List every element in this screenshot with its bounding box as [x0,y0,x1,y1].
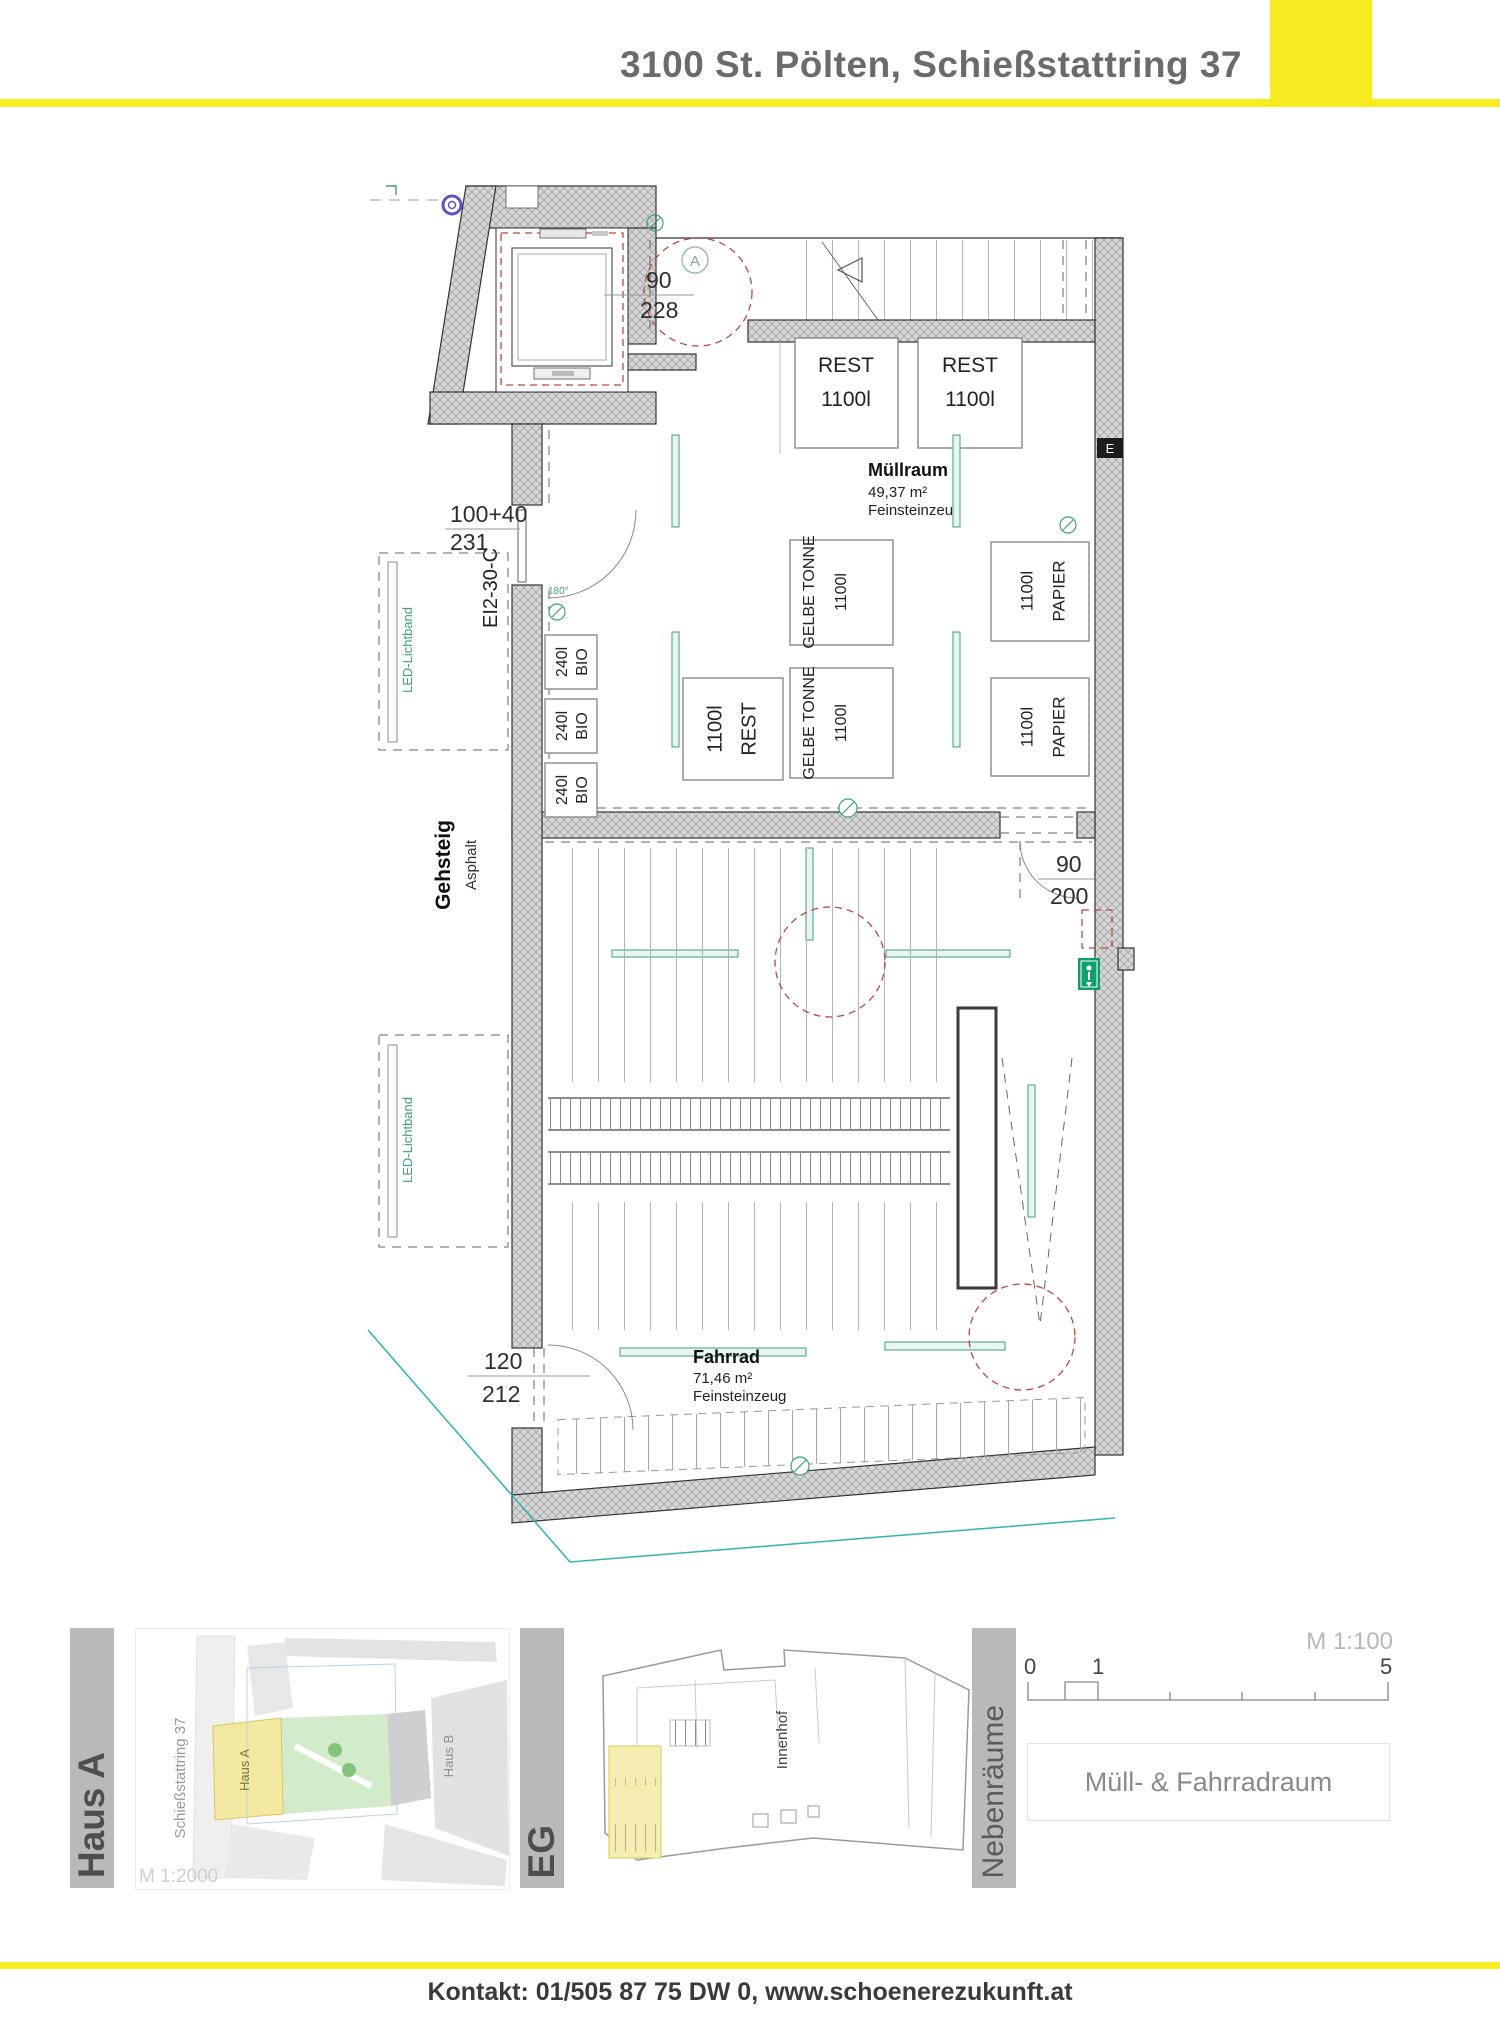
floor-drain-icon [791,1457,809,1475]
key-plan: Innenhof [575,1628,995,1895]
bin-rest-side-type: REST [738,702,760,755]
building-bar: Haus A [70,1628,114,1888]
room-floor-muellraum: Feinsteinzeug [868,502,961,519]
door-symbol-icon [549,604,565,620]
muellraum-label: Müllraum 49,37 m² Feinsteinzeug [868,460,961,519]
tree-icon [328,1743,342,1757]
bin-rest-side-size: 1100l [704,705,726,752]
bin-gelbe-1: GELBE TONNE 1100l [790,535,893,648]
building-bar-label: Haus A [71,1752,113,1878]
electrical-panel-label: E [1106,441,1115,456]
bin-bio-1-type: BIO [574,648,591,676]
site-street-label: Schießstattring 37 [172,1718,189,1839]
tree-icon [342,1763,356,1777]
bin-bio-2-type: BIO [574,712,591,740]
bin-bio-1: 240l BIO [545,635,597,689]
dim-bike-door-height: 212 [482,1381,520,1407]
bin-bio-3-size: 240l [554,775,571,805]
bin-rest-2-size: 1100l [945,388,995,411]
electrical-panel: E [1097,438,1123,458]
bin-rest-2: REST 1100l [918,338,1022,448]
section-marker-a-label: A [690,253,700,270]
bin-papier-1-size: 1100l [1017,571,1036,611]
room-name-muellraum: Müllraum [868,460,948,480]
site-plan: Schießstattring 37 Haus A Haus B M 1:200… [135,1628,510,1895]
dim-lift-door-width: 90 [646,267,672,293]
category-bar-label: Nebenräume [977,1705,1011,1878]
level-bar-label: EG [521,1825,563,1878]
room-area-fahrrad: 71,46 m² [693,1370,752,1387]
led-lichtband-lower: LED-Lichtband [379,1035,508,1247]
bin-gelbe-2: GELBE TONNE 1100l [790,666,893,779]
floor-plan-drawing: A 90 228 E REST 1100l REST 1100l Müllrau… [0,120,1500,1610]
bin-papier-2-size: 1100l [1017,707,1036,747]
room-area-muellraum: 49,37 m² [868,484,927,501]
footer-rule [0,1962,1500,1969]
site-haus-a-label: Haus A [237,1749,252,1791]
bin-rest-2-type: REST [942,354,998,377]
category-bar: Nebenräume [972,1628,1016,1888]
keyplan-courtyard-label: Innenhof [774,1710,791,1769]
room-name-fahrrad: Fahrrad [693,1347,760,1367]
dim-bike-door-width: 120 [484,1348,522,1374]
sheet-title: Müll- & Fahrradraum [1085,1767,1333,1797]
elevator [496,228,650,392]
bin-rest-1-type: REST [818,354,874,377]
bin-gelbe-2-type: GELBE TONNE [801,666,818,779]
bin-papier-2-type: PAPIER [1049,696,1068,757]
bin-bio-2-size: 240l [554,711,571,741]
bin-rest-side: 1100l REST [683,678,783,780]
dim-inner-door-height: 200 [1050,883,1088,909]
scale-ratio-label: M 1:100 [1306,1628,1393,1656]
scale-tick-5: 5 [1380,1658,1392,1679]
bike-room [545,517,1092,1475]
door-swing-angle: 180° [548,586,569,597]
scale-bar: 0 1 5 [1020,1658,1395,1718]
dim-lift-door-height: 228 [640,297,678,323]
scale-block: M 1:100 0 1 5 Müll- & Fahrradraum [1020,1628,1395,1890]
bin-bio-2: 240l BIO [545,699,597,753]
bin-rest-1: REST 1100l [795,338,898,448]
floor-drain-icon-2 [839,799,857,817]
bin-bio-3: 240l BIO [545,763,597,817]
led-lichtband-label-2: LED-Lichtband [400,1097,415,1183]
fire-door-rating: EI2-30-C [480,548,502,628]
bike-door: 120 212 [468,1345,633,1430]
bike-rack-row-1 [548,1098,950,1130]
site-scale-label: M 1:2000 [139,1866,218,1887]
accent-square [1270,0,1372,99]
scale-tick-0: 0 [1024,1658,1036,1679]
sensor-icon-2 [1060,517,1076,533]
bin-bio-3-type: BIO [574,776,591,804]
sheet-title-box: Müll- & Fahrradraum [1027,1743,1390,1821]
sidewalk-label: Gehsteig Asphalt [432,820,480,910]
bin-gelbe-1-size: 1100l [833,573,850,611]
sheet-header-title: 3100 St. Pölten, Schießstattring 37 [620,44,1242,86]
footer-contact: Kontakt: 01/505 87 75 DW 0, www.schoener… [0,1978,1500,2007]
sidewalk-material: Asphalt [463,839,480,890]
level-bar: EG [520,1628,564,1888]
bin-gelbe-1-type: GELBE TONNE [801,535,818,648]
site-haus-b-label: Haus B [441,1735,456,1778]
bin-papier-2: 1100l PAPIER [991,678,1089,776]
bin-papier-1-type: PAPIER [1049,560,1068,621]
room-floor-fahrrad: Feinsteinzeug [693,1388,786,1405]
sidewalk-name: Gehsteig [432,820,455,910]
bike-rack-row-2 [548,1152,950,1184]
key-plan-drawing: Innenhof [575,1628,995,1890]
header-rule [0,99,1500,107]
dim-entry-door-width: 100+40 [450,501,527,527]
survey-point-icon [443,196,461,214]
staircase [656,238,1123,320]
bin-rest-1-size: 1100l [821,388,871,411]
exit-sign-icon [1078,958,1100,990]
bin-papier-1: 1100l PAPIER [991,542,1089,641]
bin-bio-1-size: 240l [554,647,571,677]
led-lichtband-label-1: LED-Lichtband [400,607,415,693]
ramp [958,1008,996,1288]
dim-inner-door-width: 90 [1056,851,1082,877]
site-plan-drawing: Schießstattring 37 Haus A Haus B M 1:200… [135,1628,510,1890]
bin-gelbe-2-size: 1100l [833,704,850,742]
scale-tick-1: 1 [1092,1658,1104,1679]
turning-circle-3 [969,1284,1075,1390]
plan-sheet: { "header": { "title": "3100 St. Pölten,… [0,0,1500,2030]
